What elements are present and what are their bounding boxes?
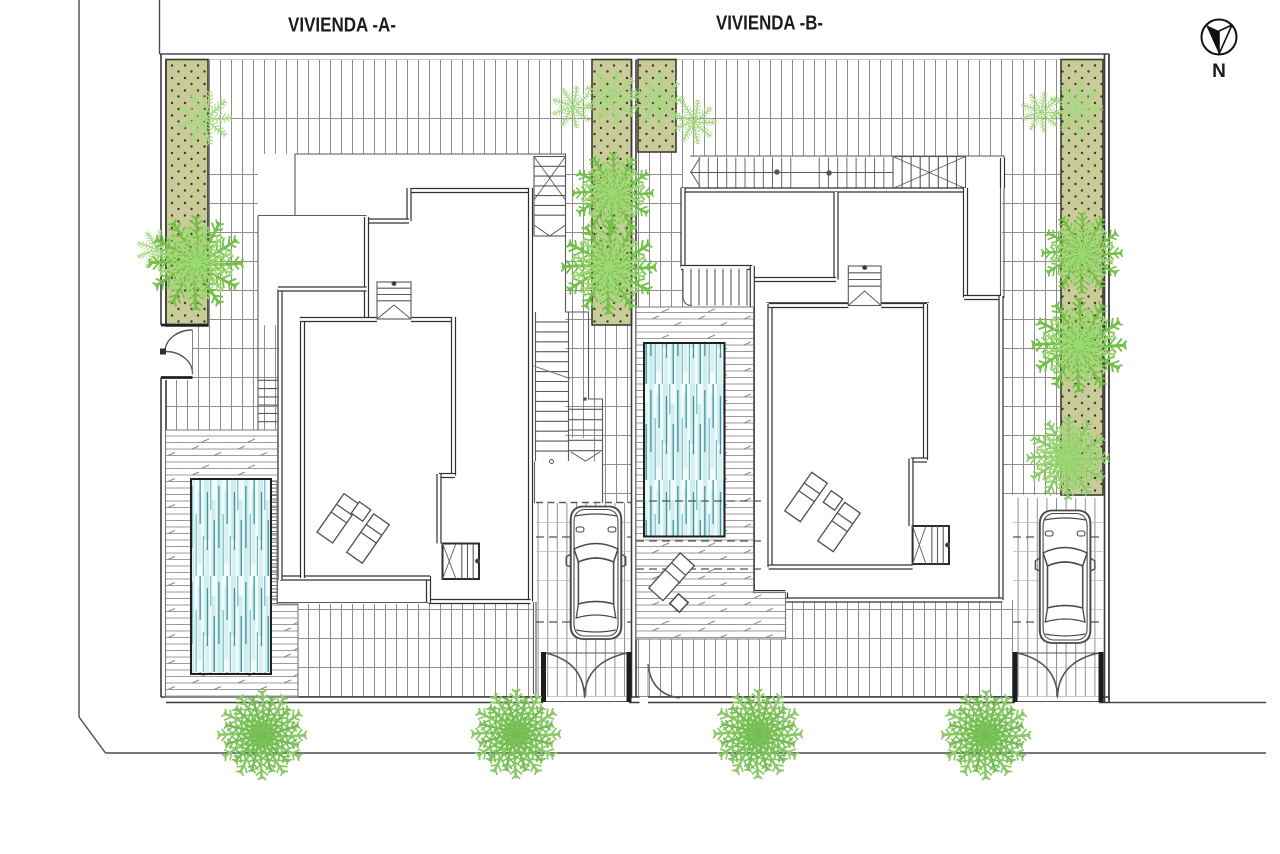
svg-text:VIVIENDA -B-: VIVIENDA -B- bbox=[716, 12, 823, 35]
svg-text:N: N bbox=[1212, 61, 1226, 82]
svg-text:VIVIENDA -A-: VIVIENDA -A- bbox=[288, 14, 396, 37]
